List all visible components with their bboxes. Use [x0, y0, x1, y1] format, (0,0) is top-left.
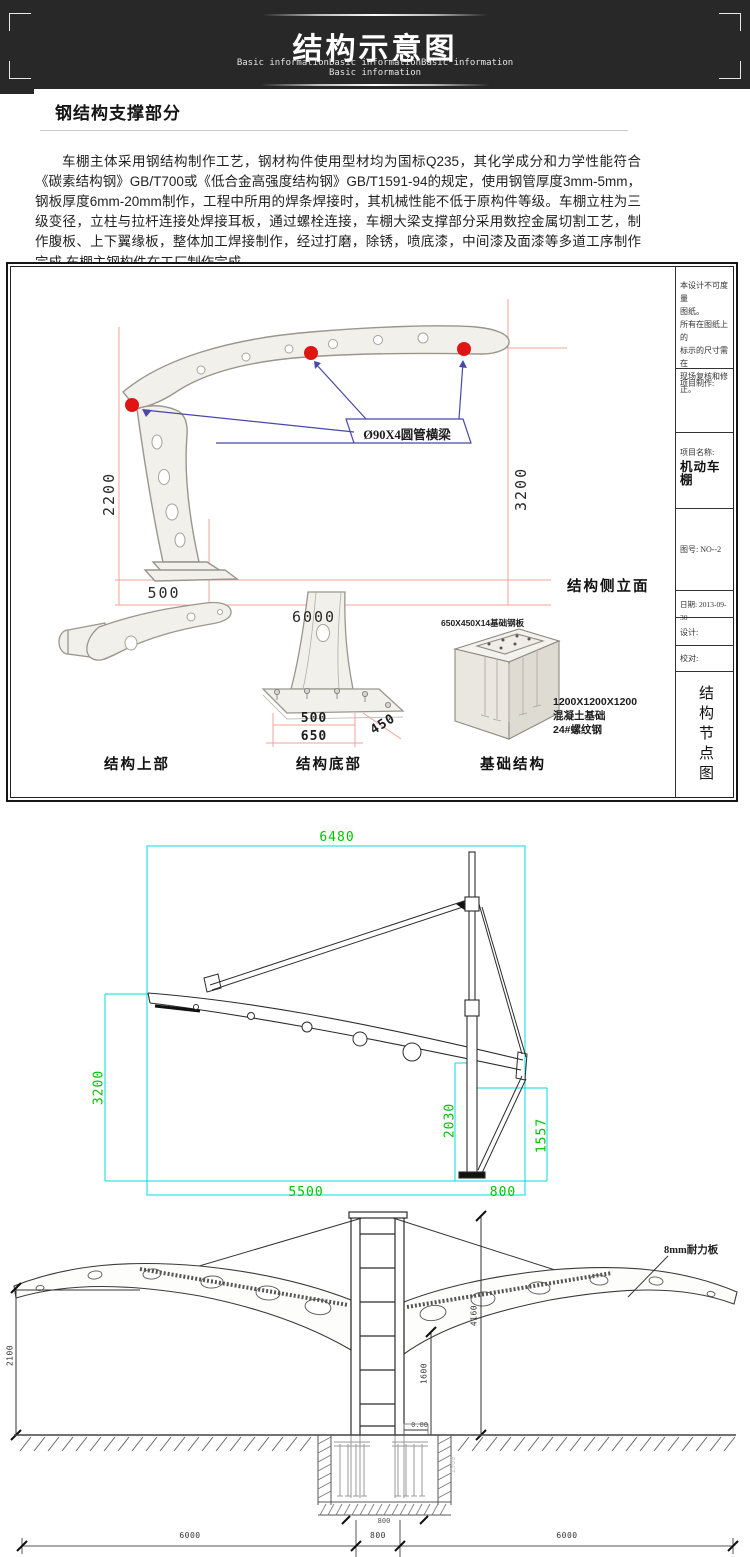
dim-top-6480: 6480	[297, 830, 377, 845]
dim-span-left: 6000	[150, 1531, 230, 1540]
dim-total-width: 6000	[279, 608, 349, 626]
dim-pole-2030: 2030	[443, 1103, 458, 1139]
pit-anchor-bolts	[334, 1442, 428, 1496]
pit-walls	[318, 1435, 451, 1515]
ladder-below-grade	[351, 1435, 404, 1498]
title-block-sheet-title: 结构节点图	[676, 672, 733, 797]
dim-bottom-800: 800	[483, 1185, 523, 1200]
title-block-designer: 设计:	[676, 618, 733, 646]
cad-sheet-panel: 2200 3200 500 6000 Ø90X4圆管横梁 结构侧立面 结构上部 …	[6, 262, 738, 802]
page: 结构示意图 Basic informationBasic information…	[0, 0, 750, 1557]
dim-1600: 1600	[420, 1356, 429, 1392]
dim-right-1557: 1557	[535, 1118, 550, 1154]
dim-4160: 4160	[470, 1298, 479, 1334]
header-tab	[0, 89, 34, 94]
concrete-note-line2: 混凝土基础	[553, 709, 663, 723]
header-banner: 结构示意图 Basic informationBasic information…	[0, 0, 750, 89]
dim-bottom-5500: 5500	[276, 1185, 336, 1200]
pit-hatch	[318, 1437, 451, 1515]
title-block-maker: 项目制作:	[676, 369, 733, 433]
title-block-checker: 校对:	[676, 646, 733, 672]
detail-upper-structure	[59, 602, 231, 660]
dim-base-width: 500	[139, 584, 189, 602]
foundation-plate-note: 650X450X14基础钢板	[441, 617, 573, 629]
tie-rod	[204, 900, 469, 992]
dim-plate-650: 650	[284, 729, 344, 744]
dim-span-right: 6000	[527, 1531, 607, 1540]
dim-pit-800: 800	[364, 1517, 404, 1525]
detail-foundation-cube	[455, 629, 559, 739]
cyan-dimension-boxes	[105, 846, 547, 1195]
ladder-column	[349, 1212, 407, 1435]
section-heading: 钢结构支撑部分	[55, 99, 181, 124]
cables	[172, 1218, 580, 1278]
project-name-label: 项目名称:	[680, 448, 714, 457]
ground-hatch-left	[20, 1437, 311, 1451]
panel-material-label: 8mm耐力板	[664, 1242, 718, 1257]
detail-label-foundation: 基础结构	[471, 753, 555, 774]
dim-left-height: 2200	[100, 452, 118, 516]
project-name-value: 机动车棚	[680, 461, 729, 487]
dim-span-center: 800	[358, 1531, 398, 1540]
concrete-note: 1200X1200X1200 混凝土基础 24#螺纹钢	[553, 695, 663, 737]
title-block-date: 日期: 2013-09-30	[676, 591, 733, 618]
concrete-note-line1: 1200X1200X1200	[553, 695, 663, 709]
detail-label-upper: 结构上部	[95, 753, 179, 774]
title-block-drawing-no: 图号: NO--2	[676, 509, 733, 591]
front-view-svg	[0, 1208, 750, 1557]
section-rule	[40, 130, 628, 131]
dim-pit-depth: 1500	[449, 1450, 457, 1480]
page-subtitle: Basic informationBasic informationBasic …	[0, 58, 750, 68]
concrete-note-line3: 24#螺纹钢	[553, 723, 663, 737]
page-subtitle: Basic information	[0, 68, 750, 78]
dim-right-height: 3200	[512, 447, 530, 511]
side-view-svg	[88, 828, 568, 1210]
cad-side-view-drawing: 6480 3200 2030 1557 5500 800	[88, 828, 568, 1210]
title-block-project-name: 项目名称: 机动车棚	[676, 433, 733, 509]
title-block-notes: 本设计不可度量图纸。 所有在图纸上的标示的尺寸需在现场复核和修正。	[676, 267, 733, 369]
title-block: 本设计不可度量图纸。 所有在图纸上的标示的尺寸需在现场复核和修正。 项目制作: …	[675, 267, 733, 797]
divider-line	[263, 14, 488, 16]
back-stays	[478, 904, 527, 1173]
ground-hatch-right	[458, 1437, 735, 1451]
view-label: 结构侧立面	[567, 575, 650, 596]
divider-line	[260, 84, 490, 86]
level-marker: 0.00	[402, 1421, 428, 1429]
dim-2100: 2100	[6, 1338, 15, 1374]
beam-holes	[194, 1005, 422, 1062]
dim-plate-500: 500	[284, 711, 344, 726]
cad-front-view-drawing: 8mm耐力板 2100 4160 1600 0.00 1500 800 6000…	[0, 1208, 750, 1557]
callout-label: Ø90X4圆管横梁	[351, 424, 463, 443]
detail-label-bottom: 结构底部	[287, 753, 371, 774]
description-paragraph: 车棚主体采用钢结构制作工艺，钢材构件使用型材均为国标Q235，其化学成分和力学性…	[35, 152, 641, 273]
wings	[14, 1263, 737, 1354]
dim-left-3200: 3200	[92, 1070, 107, 1106]
